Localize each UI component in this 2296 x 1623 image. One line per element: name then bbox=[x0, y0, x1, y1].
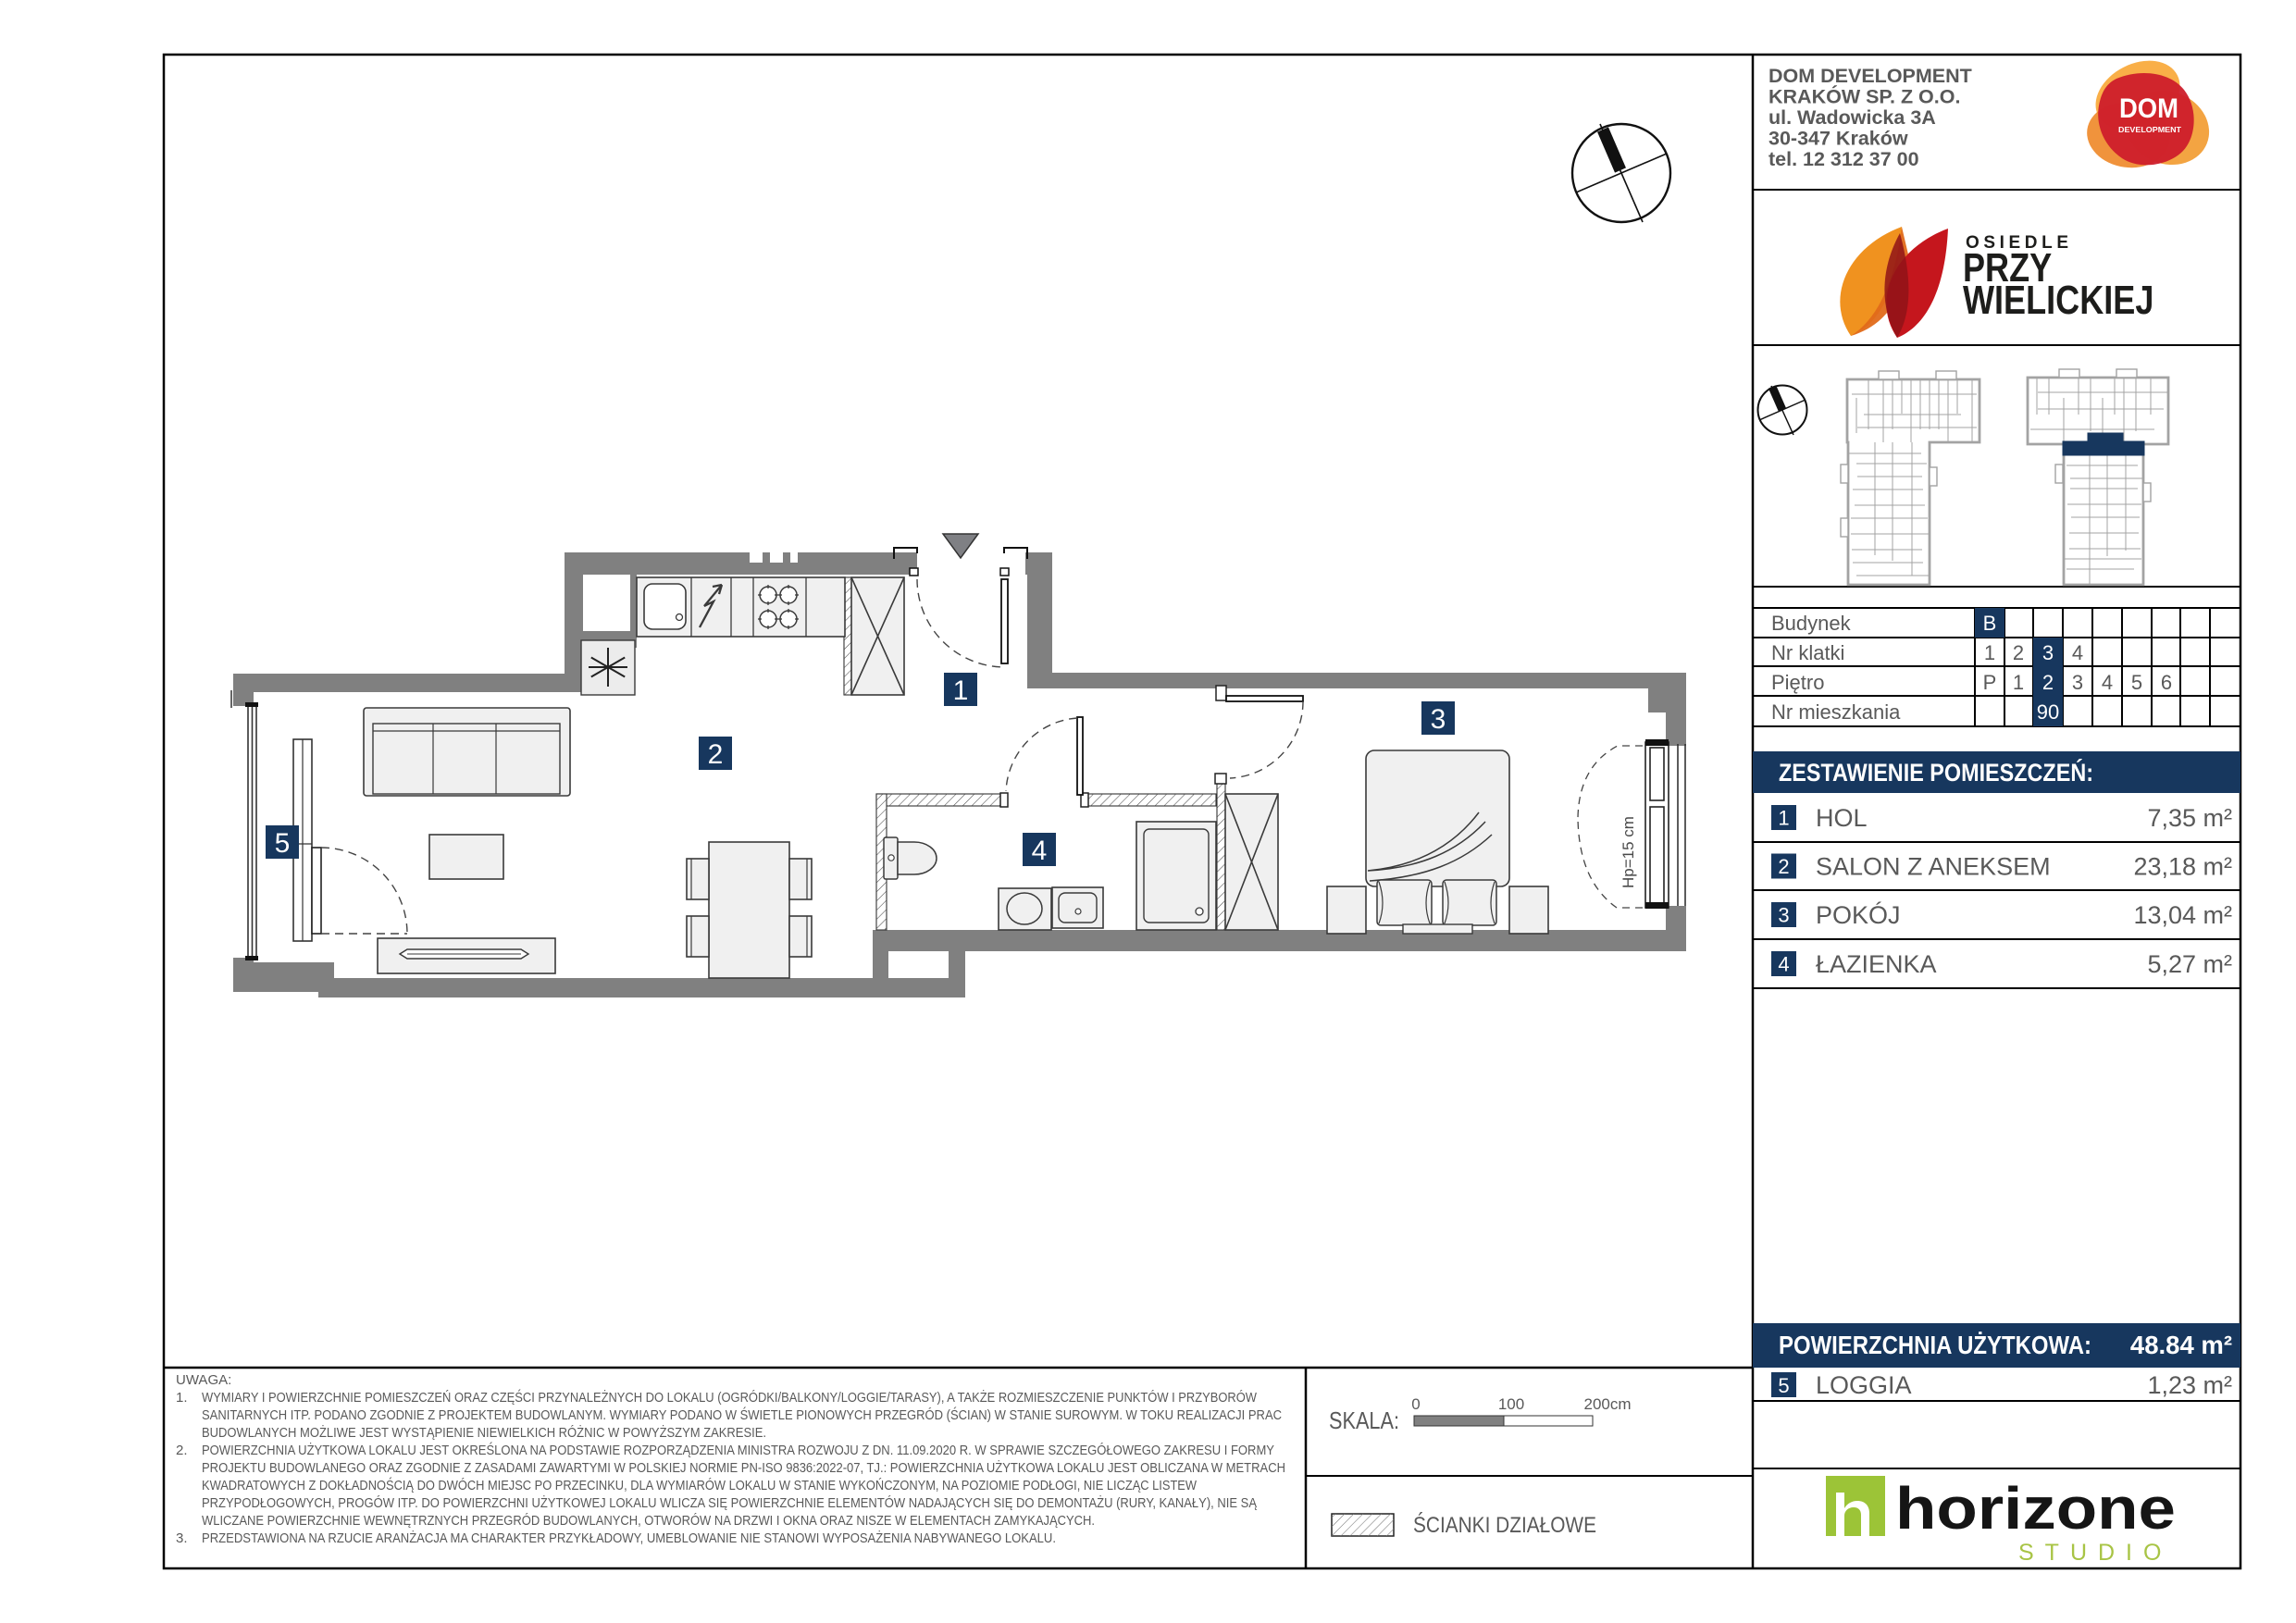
svg-text:Piętro: Piętro bbox=[1771, 671, 1824, 694]
svg-text:2: 2 bbox=[2013, 641, 2024, 664]
svg-text:SANITARNYCH ITP. PODANO ZGODNI: SANITARNYCH ITP. PODANO ZGODNIE Z PROJEK… bbox=[202, 1406, 1282, 1423]
svg-text:tel. 12 312 37 00: tel. 12 312 37 00 bbox=[1769, 148, 1919, 170]
svg-text:30-347 Kraków: 30-347 Kraków bbox=[1769, 128, 1908, 150]
svg-text:WYMIARY I POWIERZCHNIE POMIESZ: WYMIARY I POWIERZCHNIE POMIESZCZEŃ ORAZ … bbox=[202, 1389, 1258, 1406]
svg-text:PROJEKTU BUDOWLANEGO ORAZ ZGOD: PROJEKTU BUDOWLANEGO ORAZ ZGODNIE Z ZASA… bbox=[202, 1459, 1285, 1476]
svg-text:0: 0 bbox=[1411, 1395, 1420, 1413]
svg-text:3.: 3. bbox=[176, 1530, 188, 1546]
svg-text:P: P bbox=[1983, 671, 1997, 694]
svg-text:WLICZANE POWIERZCHNIE WEWNĘTRZ: WLICZANE POWIERZCHNIE WEWNĘTRZNYCH PRZEG… bbox=[202, 1513, 1095, 1529]
svg-text:DEVELOPMENT: DEVELOPMENT bbox=[2118, 125, 2182, 134]
svg-text:5: 5 bbox=[275, 828, 291, 859]
svg-text:B: B bbox=[1983, 612, 1997, 635]
svg-text:ZESTAWIENIE POMIESZCZEŃ:: ZESTAWIENIE POMIESZCZEŃ: bbox=[1779, 758, 2093, 787]
svg-text:100: 100 bbox=[1498, 1395, 1524, 1413]
svg-text:POWIERZCHNIA UŻYTKOWA:: POWIERZCHNIA UŻYTKOWA: bbox=[1779, 1331, 2091, 1359]
svg-text:Nr klatki: Nr klatki bbox=[1771, 641, 1844, 664]
svg-text:POKÓJ: POKÓJ bbox=[1816, 900, 1901, 929]
svg-text:3: 3 bbox=[1778, 904, 1789, 927]
svg-text:23,18 m²: 23,18 m² bbox=[2133, 853, 2232, 881]
svg-text:Hp=15 cm: Hp=15 cm bbox=[1620, 816, 1637, 888]
svg-text:PRZYPODŁOGOWYCH, PROGÓW ITP. D: PRZYPODŁOGOWYCH, PROGÓW ITP. DO POWIERZC… bbox=[202, 1494, 1258, 1511]
svg-text:3: 3 bbox=[2042, 641, 2054, 664]
svg-text:5,27 m²: 5,27 m² bbox=[2147, 950, 2232, 978]
svg-text:SALON Z ANEKSEM: SALON Z ANEKSEM bbox=[1816, 853, 2051, 881]
svg-text:1: 1 bbox=[2013, 671, 2024, 694]
svg-text:ŚCIANKI DZIAŁOWE: ŚCIANKI DZIAŁOWE bbox=[1413, 1512, 1596, 1538]
svg-text:5: 5 bbox=[1778, 1374, 1789, 1397]
svg-text:5: 5 bbox=[2131, 671, 2142, 694]
svg-text:1: 1 bbox=[1778, 807, 1789, 830]
svg-text:Budynek: Budynek bbox=[1771, 612, 1852, 635]
svg-text:13,04 m²: 13,04 m² bbox=[2133, 901, 2232, 929]
svg-text:SKALA:: SKALA: bbox=[1329, 1406, 1399, 1434]
svg-text:KRAKÓW SP. Z O.O.: KRAKÓW SP. Z O.O. bbox=[1769, 85, 1960, 108]
svg-text:STUDIO: STUDIO bbox=[2018, 1540, 2172, 1566]
svg-text:200cm: 200cm bbox=[1583, 1395, 1631, 1413]
svg-text:ul. Wadowicka 3A: ul. Wadowicka 3A bbox=[1769, 106, 1936, 129]
svg-text:HOL: HOL bbox=[1816, 804, 1868, 832]
svg-text:2.: 2. bbox=[176, 1443, 188, 1458]
svg-text:POWIERZCHNIA UŻYTKOWA LOKALU J: POWIERZCHNIA UŻYTKOWA LOKALU JEST OKREŚL… bbox=[202, 1442, 1274, 1458]
svg-text:1,23 m²: 1,23 m² bbox=[2147, 1371, 2232, 1399]
svg-text:2: 2 bbox=[1778, 855, 1789, 878]
svg-text:1.: 1. bbox=[176, 1390, 188, 1406]
svg-text:7,35 m²: 7,35 m² bbox=[2147, 804, 2232, 832]
svg-text:ŁAZIENKA: ŁAZIENKA bbox=[1816, 950, 1937, 978]
svg-text:WIELICKIEJ: WIELICKIEJ bbox=[1963, 278, 2153, 323]
svg-text:KWADRATOWYCH Z DOKŁADNOŚCIĄ DO: KWADRATOWYCH Z DOKŁADNOŚCIĄ DO DWÓCH MIE… bbox=[202, 1477, 1198, 1493]
svg-text:LOGGIA: LOGGIA bbox=[1816, 1371, 1912, 1399]
svg-text:2: 2 bbox=[2042, 671, 2054, 694]
svg-text:2: 2 bbox=[708, 739, 724, 770]
svg-text:DOM: DOM bbox=[2119, 93, 2178, 124]
svg-text:4: 4 bbox=[2072, 641, 2083, 664]
svg-text:48.84 m²: 48.84 m² bbox=[2130, 1331, 2232, 1359]
svg-text:1: 1 bbox=[1984, 641, 1995, 664]
svg-text:90: 90 bbox=[2037, 700, 2059, 724]
svg-text:4: 4 bbox=[2102, 671, 2113, 694]
svg-text:4: 4 bbox=[1778, 953, 1789, 976]
svg-text:3: 3 bbox=[1431, 704, 1446, 735]
svg-text:horizone: horizone bbox=[1895, 1475, 2176, 1542]
svg-text:Nr mieszkania: Nr mieszkania bbox=[1771, 700, 1901, 724]
svg-text:PRZEDSTAWIONA NA RZUCIE ARANŻA: PRZEDSTAWIONA NA RZUCIE ARANŻACJA MA CHA… bbox=[202, 1530, 1056, 1546]
svg-text:1: 1 bbox=[953, 675, 969, 706]
svg-text:3: 3 bbox=[2072, 671, 2083, 694]
svg-text:DOM DEVELOPMENT: DOM DEVELOPMENT bbox=[1769, 65, 1972, 87]
svg-text:6: 6 bbox=[2161, 671, 2172, 694]
svg-text:BUDOWLANYCH MOŻLIWE JEST WYSTĄ: BUDOWLANYCH MOŻLIWE JEST WYSTĄPIENIE NIE… bbox=[202, 1424, 766, 1441]
svg-text:4: 4 bbox=[1032, 836, 1048, 866]
svg-text:UWAGA:: UWAGA: bbox=[176, 1372, 231, 1388]
